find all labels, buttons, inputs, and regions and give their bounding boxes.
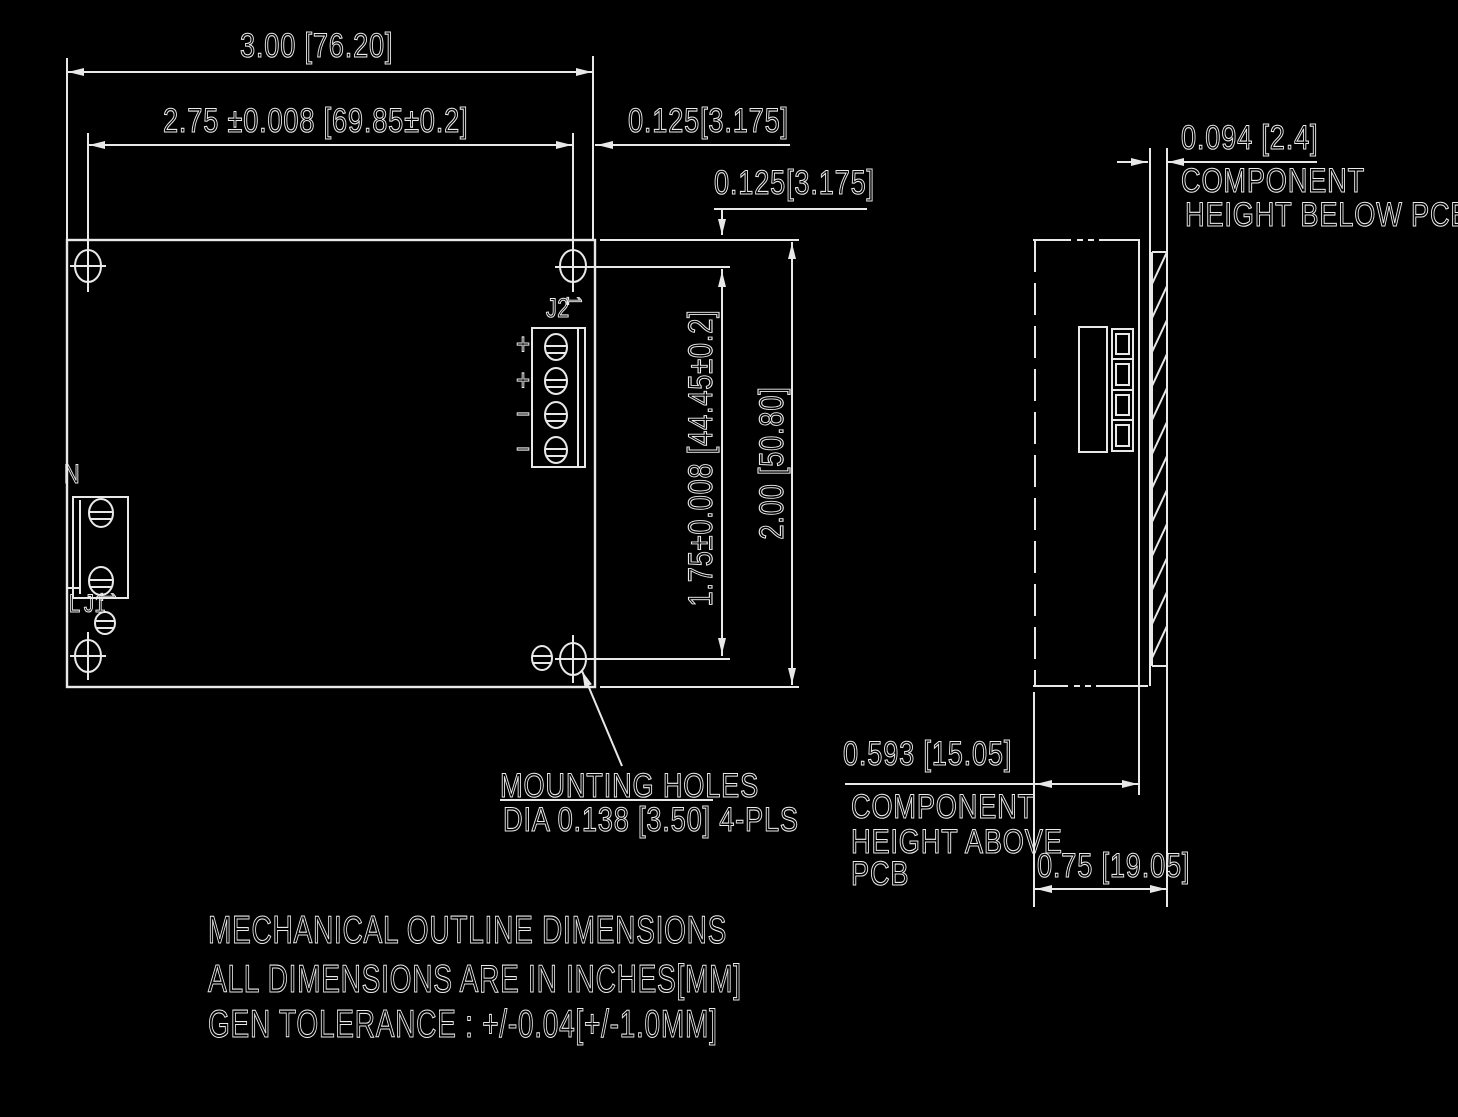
dim-overall-height: 2.00 [50.80] [755,386,789,539]
callout-component-above-2: HEIGHT ABOVE [851,825,1063,859]
note-units: ALL DIMENSIONS ARE IN INCHES[MM] [208,960,742,999]
dim-component-height-above: 0.593 [15.05] [843,737,1012,771]
dim-edge-offset-top: 0.125[3.175] [714,166,875,200]
dim-overall-width: 3.00 [76.20] [240,29,393,63]
mounting-hole-top-right [555,250,730,282]
label-terminal-minus-1: − [516,400,530,430]
mounting-hole-bottom-left [70,632,106,680]
callout-mounting-holes-title: MOUNTING HOLES [500,769,759,803]
mounting-hole-bottom-right [555,635,730,683]
label-neutral: N [64,461,80,488]
terminal-block-j2 [532,328,585,467]
dim-edge-offset-right: 0.125[3.175] [628,104,789,138]
label-terminal-plus-2: + [516,366,530,396]
label-terminal-plus-1: + [516,330,530,360]
callout-mounting-holes-detail: DIA 0.138 [3.50] 4-PLS [503,803,799,837]
front-view [67,240,730,687]
callout-component-above-1: COMPONENT [851,790,1035,824]
dim-hole-span-height: 1.75±0.008 [44.45±0.2] [684,309,718,606]
hatched-strip [1152,148,1167,907]
mechanical-outline-drawing: 3.00 [76.20] 2.75 ±0.008 [69.85±0.2] 0.1… [0,0,1458,1117]
callout-component-above-3: PCB [851,857,909,891]
callout-component-below-1: COMPONENT [1181,164,1365,198]
dim-component-height-below: 0.094 [2.4] [1181,121,1318,155]
label-j2-pin1-marker: 1 [563,296,584,305]
terminal-block-side [1079,327,1133,452]
side-view [1033,148,1167,907]
terminal-block-j1 [67,497,128,598]
note-title: MECHANICAL OUTLINE DIMENSIONS [208,911,727,950]
dim-overall-depth: 0.75 [19.05] [1037,849,1190,883]
label-line: L [69,592,81,617]
screw-bottom-right [532,646,552,670]
label-terminal-minus-2: − [516,435,530,465]
callout-component-below-2: HEIGHT BELOW PCB [1185,198,1458,232]
note-tolerance: GEN TOLERANCE : +/-0.04[+/-1.0MM] [208,1005,718,1044]
dim-hole-span-width: 2.75 ±0.008 [69.85±0.2] [163,104,468,138]
label-j1-pin1-marker: 1 [97,592,118,601]
